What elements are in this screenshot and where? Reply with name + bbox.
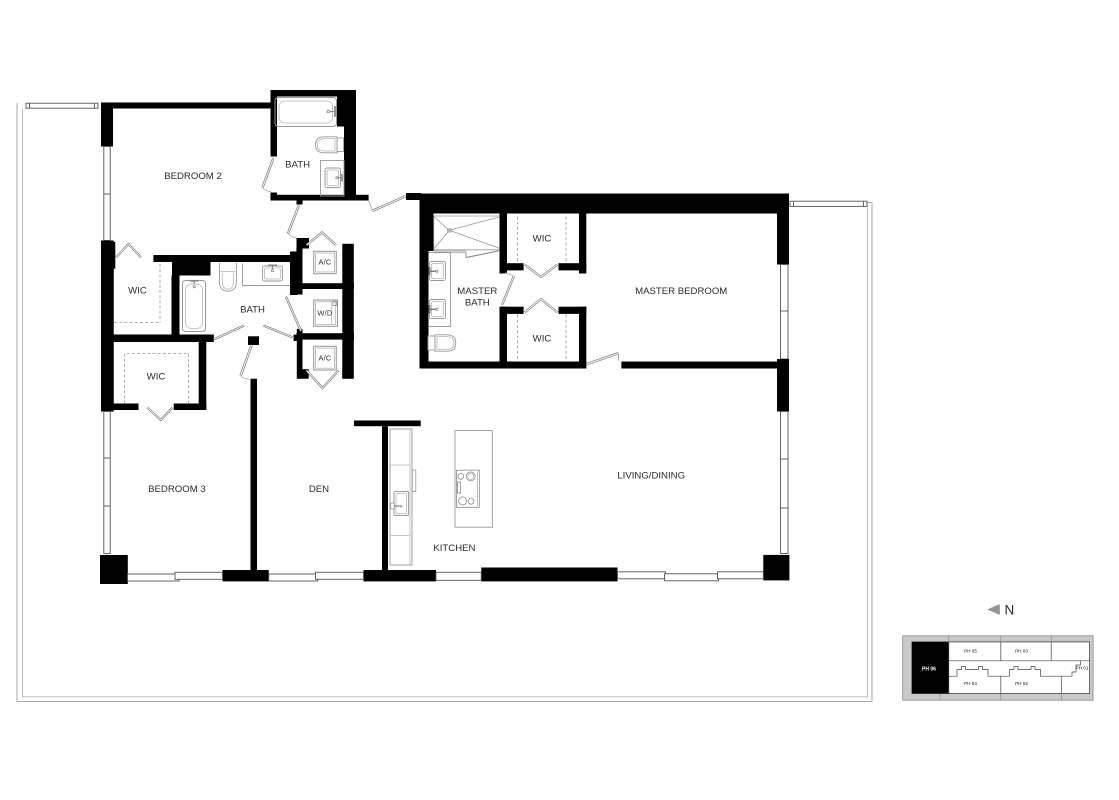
svg-text:WIC: WIC: [533, 233, 552, 244]
svg-text:BATH: BATH: [285, 160, 310, 171]
svg-text:PH 05: PH 05: [964, 648, 977, 653]
svg-text:WIC: WIC: [533, 333, 552, 344]
svg-text:KITCHEN: KITCHEN: [433, 543, 475, 554]
svg-text:PH 04: PH 04: [964, 681, 977, 686]
svg-text:BEDROOM 2: BEDROOM 2: [164, 171, 222, 182]
svg-text:WIC: WIC: [128, 285, 147, 296]
svg-text:DEN: DEN: [309, 484, 329, 495]
svg-text:WIC: WIC: [147, 371, 166, 382]
svg-text:PH 01: PH 01: [1076, 665, 1089, 670]
svg-text:PH 06: PH 06: [922, 666, 936, 672]
svg-text:N: N: [1005, 603, 1015, 618]
svg-text:PH 02: PH 02: [1015, 681, 1028, 686]
svg-text:MASTER BEDROOM: MASTER BEDROOM: [635, 286, 727, 297]
svg-text:LIVING/DINING: LIVING/DINING: [617, 471, 685, 482]
svg-text:A/C: A/C: [318, 258, 331, 267]
svg-text:MASTER: MASTER: [457, 286, 497, 297]
svg-text:PH 03: PH 03: [1015, 648, 1028, 653]
svg-text:BATH: BATH: [465, 298, 490, 309]
svg-text:BEDROOM 3: BEDROOM 3: [148, 484, 206, 495]
svg-text:BATH: BATH: [240, 305, 265, 316]
svg-text:A/C: A/C: [318, 353, 331, 362]
svg-text:W/D: W/D: [317, 309, 332, 318]
